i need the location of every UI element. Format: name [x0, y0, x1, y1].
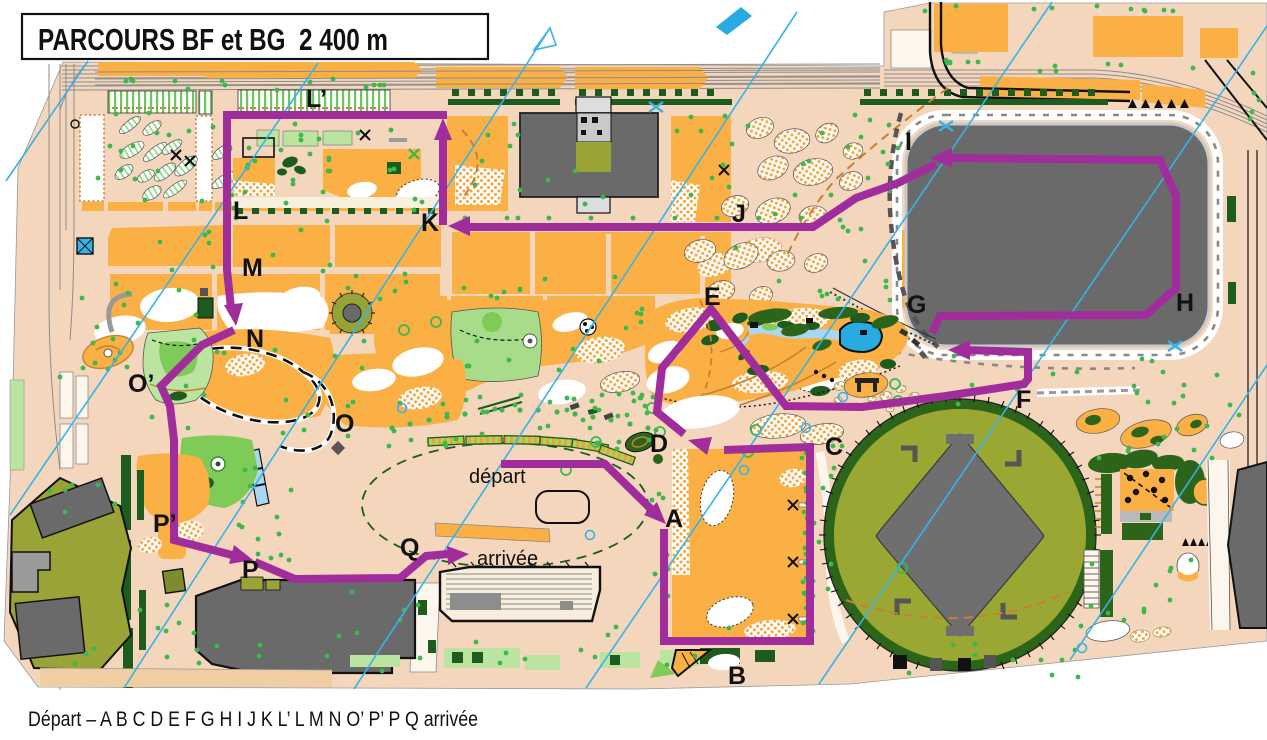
- svg-text:K: K: [421, 209, 439, 237]
- svg-text:P’: P’: [153, 510, 177, 538]
- svg-text:Départ – A B C D E F G H I J K: Départ – A B C D E F G H I J K L’ L M N …: [28, 708, 478, 731]
- svg-text:C: C: [825, 433, 843, 461]
- svg-text:PARCOURS BF et BG 2 400 m: PARCOURS BF et BG 2 400 m: [38, 22, 388, 57]
- svg-text:M: M: [242, 254, 263, 282]
- svg-text:N: N: [246, 325, 264, 353]
- svg-text:G: G: [907, 291, 926, 319]
- svg-text:F: F: [1016, 386, 1031, 414]
- svg-text:Q: Q: [400, 534, 419, 562]
- svg-text:départ: départ: [469, 466, 526, 488]
- svg-text:P: P: [242, 556, 259, 584]
- svg-text:arrivée: arrivée: [477, 548, 538, 570]
- svg-text:J: J: [732, 200, 746, 228]
- svg-text:H: H: [1176, 289, 1194, 317]
- svg-text:E: E: [704, 283, 721, 311]
- svg-text:L: L: [233, 197, 248, 225]
- svg-text:D: D: [650, 430, 668, 458]
- svg-text:O’: O’: [128, 370, 154, 398]
- svg-text:I: I: [905, 128, 912, 156]
- svg-text:L’: L’: [306, 85, 327, 113]
- svg-text:A: A: [665, 505, 683, 533]
- svg-text:O: O: [335, 410, 354, 438]
- svg-text:B: B: [728, 662, 746, 690]
